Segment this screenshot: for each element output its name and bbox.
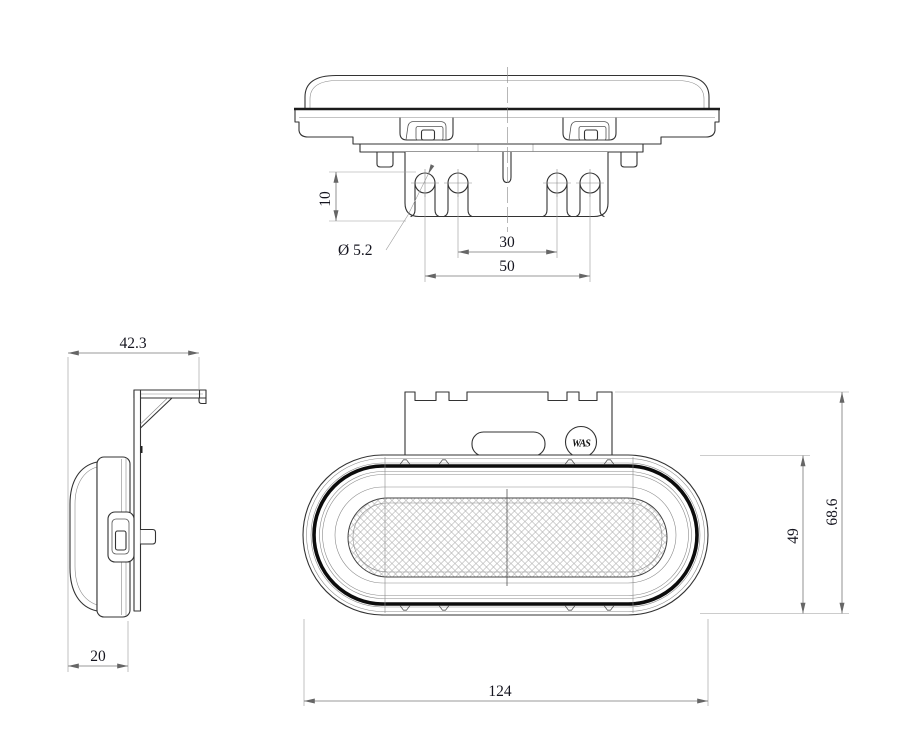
dim-body-depth: 20	[90, 648, 106, 665]
brand-logo: WAS	[566, 427, 597, 458]
drawing-svg: 10 Ø 5.2 30 50 42.3 20	[0, 0, 911, 756]
dim-hole-offset: 10	[317, 191, 334, 207]
side-view	[70, 390, 206, 617]
dim-outer-hole-spacing: 50	[499, 258, 515, 275]
bracket-plate	[134, 390, 141, 611]
lamp-front	[303, 455, 708, 615]
center-pin	[503, 152, 511, 183]
dim-overall-height: 68.6	[824, 498, 841, 525]
top-view	[294, 67, 720, 232]
mounting-stud	[141, 530, 156, 545]
dim-lens-height: 49	[785, 528, 802, 544]
flange	[295, 109, 719, 145]
dim-hole-diameter: Ø 5.2	[338, 242, 372, 259]
front-view: WAS	[303, 392, 708, 615]
reflector-panel	[348, 498, 667, 577]
bracket-hand-slot	[472, 432, 545, 456]
dim-inner-hole-spacing: 30	[499, 234, 515, 251]
bracket-gusset	[141, 398, 173, 428]
technical-drawing-canvas: 10 Ø 5.2 30 50 42.3 20	[0, 0, 911, 756]
dim-overall-depth: 42.3	[119, 335, 146, 352]
dim-overall-width: 124	[488, 683, 512, 700]
brand-logo-text: WAS	[572, 439, 591, 450]
side-tab-left	[377, 152, 393, 167]
mounting-plate-band	[360, 144, 643, 152]
side-tab-right	[621, 152, 637, 167]
lens-profile	[70, 462, 97, 611]
front-bracket: WAS	[405, 392, 612, 464]
